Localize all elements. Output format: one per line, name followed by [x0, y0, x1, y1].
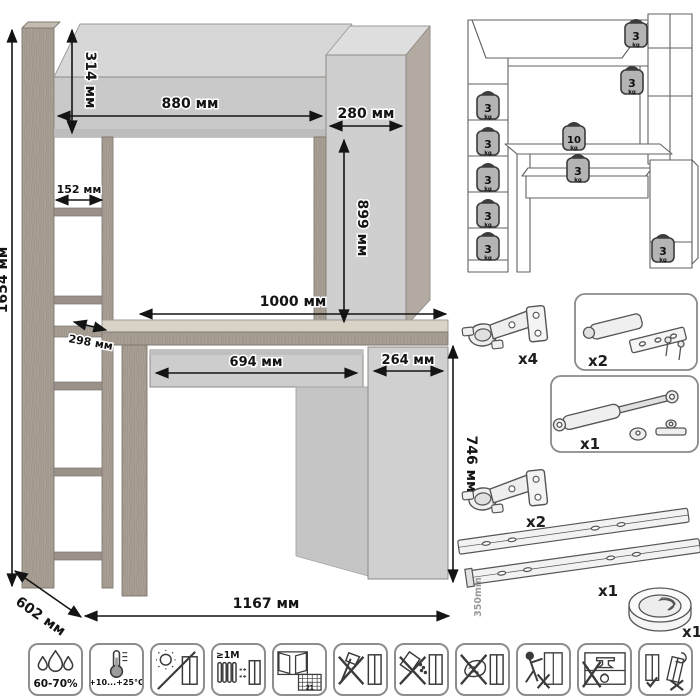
right-column-front — [326, 55, 406, 326]
drawer-slides-icon — [458, 508, 700, 587]
hutch-bottom-edge — [54, 129, 326, 137]
shelf — [54, 468, 102, 476]
outline-hutch-flap — [472, 20, 650, 58]
furniture-diagram: 1654 мм 314 мм 880 мм 280 мм 899 мм 152 … — [0, 0, 700, 645]
dim-total-height-label: 1654 мм — [0, 247, 11, 314]
slides-qty: x1 — [598, 582, 618, 600]
care-icon-no-abrasives — [394, 643, 449, 696]
dim-shelf-width: 152 мм — [56, 183, 102, 200]
desktop-front-edge — [102, 332, 448, 345]
dim-depth-label: 602 мм — [12, 594, 68, 640]
no-wet-cloth-icon — [458, 647, 507, 694]
weight-value: 3 — [484, 174, 492, 187]
weight-badge: 3 kg — [477, 165, 499, 193]
dim-total-width: 1167 мм — [85, 596, 449, 616]
shelf — [54, 296, 102, 304]
weight-value: 3 — [632, 30, 640, 43]
care-icon-ventilation: 21 — [272, 643, 327, 696]
dim-right-column-height-label: 899 мм — [354, 200, 370, 257]
calendar-day-label: 21 — [306, 686, 314, 692]
dim-desk-height-label: 746 мм — [463, 436, 479, 493]
no-impact-icon — [336, 647, 385, 694]
grommet-qty: x1 — [682, 623, 700, 641]
left-inner-board — [102, 137, 113, 588]
dim-total-height: 1654 мм — [0, 30, 12, 586]
shelf — [54, 382, 102, 390]
weight-badge: 3 kg — [652, 236, 674, 264]
care-icon-heat-distance: ≥1М — [211, 643, 266, 696]
weight-value: 3 — [484, 210, 492, 223]
weight-unit: kg — [484, 256, 492, 262]
weight-unit: kg — [484, 151, 492, 157]
outline-desktop — [505, 144, 672, 154]
weight-value: 3 — [628, 77, 636, 90]
care-icon-no-dragging — [516, 643, 571, 696]
weight-unit: kg — [484, 223, 492, 229]
no-abrasives-icon — [397, 647, 446, 694]
dim-door-width-label: 264 мм — [382, 353, 435, 368]
dim-hutch-height-label: 314 мм — [82, 52, 98, 109]
outline-cabinet-door-open — [692, 160, 698, 264]
no-sunlight-icon — [153, 647, 202, 694]
weight-badge: 3 kg — [567, 156, 589, 184]
temperature-icon — [92, 647, 141, 680]
weight-unit: kg — [570, 146, 578, 152]
weight-badge: 3 kg — [621, 68, 643, 96]
weight-unit: kg — [484, 187, 492, 193]
temperature-label: +10...+25°C — [89, 679, 144, 687]
care-icon-level-placement — [638, 643, 693, 696]
dim-drawer-width-label: 694 мм — [230, 355, 283, 370]
care-icons-row: 60-70% +10...+25°C ≥1М — [28, 643, 693, 696]
weight-unit: kg — [574, 178, 582, 184]
heat-distance-icon: ≥1М — [214, 647, 263, 694]
no-overload-icon — [580, 647, 629, 694]
shelf — [54, 208, 102, 216]
weight-badge: 10 kg — [563, 124, 585, 152]
hardware-panel: x4 x2 — [458, 294, 700, 641]
hinge-qty: x4 — [518, 350, 538, 368]
weight-value: 3 — [659, 245, 667, 258]
care-icon-humidity: 60-70% — [28, 643, 83, 696]
weight-badge: 3 kg — [477, 93, 499, 121]
care-icon-no-overload — [577, 643, 632, 696]
weight-unit: kg — [628, 90, 636, 96]
gas-strut-qty: x1 — [580, 435, 600, 453]
care-icon-no-wet-cleaning — [455, 643, 510, 696]
dim-top-right-width-label: 280 мм — [338, 106, 395, 122]
weight-badge: 3 kg — [625, 21, 647, 49]
dim-shelf-width-label: 152 мм — [57, 183, 102, 196]
weight-value: 3 — [574, 165, 582, 178]
weight-unit: kg — [632, 43, 640, 49]
weight-unit: kg — [484, 115, 492, 121]
dim-desktop-width-label: 1000 мм — [260, 294, 327, 310]
weight-unit: kg — [659, 258, 667, 264]
dim-hutch-width-label: 880 мм — [162, 96, 219, 112]
cabinet-door — [368, 347, 448, 579]
cabinet-side — [296, 387, 368, 576]
care-icon-no-impact — [333, 643, 388, 696]
left-board-top — [22, 22, 60, 28]
left-side-board — [22, 28, 54, 588]
weight-value: 10 — [567, 135, 581, 146]
gas-strut-icon — [552, 389, 686, 440]
weight-badge: 3 kg — [477, 201, 499, 229]
weight-badge: 3 kg — [477, 129, 499, 157]
distance-label: ≥1М — [216, 650, 240, 661]
push-latch-qty: x2 — [588, 352, 608, 370]
placement-icon — [641, 647, 690, 694]
care-icon-temperature: +10...+25°C — [89, 643, 144, 696]
weight-value: 3 — [484, 102, 492, 115]
no-drag-icon — [519, 647, 568, 694]
humidity-label: 60-70% — [33, 679, 77, 690]
slide-length-label: 350mm — [473, 577, 484, 617]
care-icon-no-sunlight — [150, 643, 205, 696]
weight-value: 3 — [484, 138, 492, 151]
shelf — [54, 552, 102, 560]
desktop-top-face — [102, 320, 448, 332]
right-column-side-face — [406, 26, 430, 326]
desk-left-panel — [122, 345, 147, 596]
weight-badge: 3 kg — [477, 234, 499, 262]
humidity-icon — [31, 647, 80, 680]
hinge-icon — [461, 305, 549, 352]
ventilation-icon: 21 — [275, 647, 324, 694]
dim-total-width-label: 1167 мм — [233, 596, 300, 612]
weight-value: 3 — [484, 243, 492, 256]
